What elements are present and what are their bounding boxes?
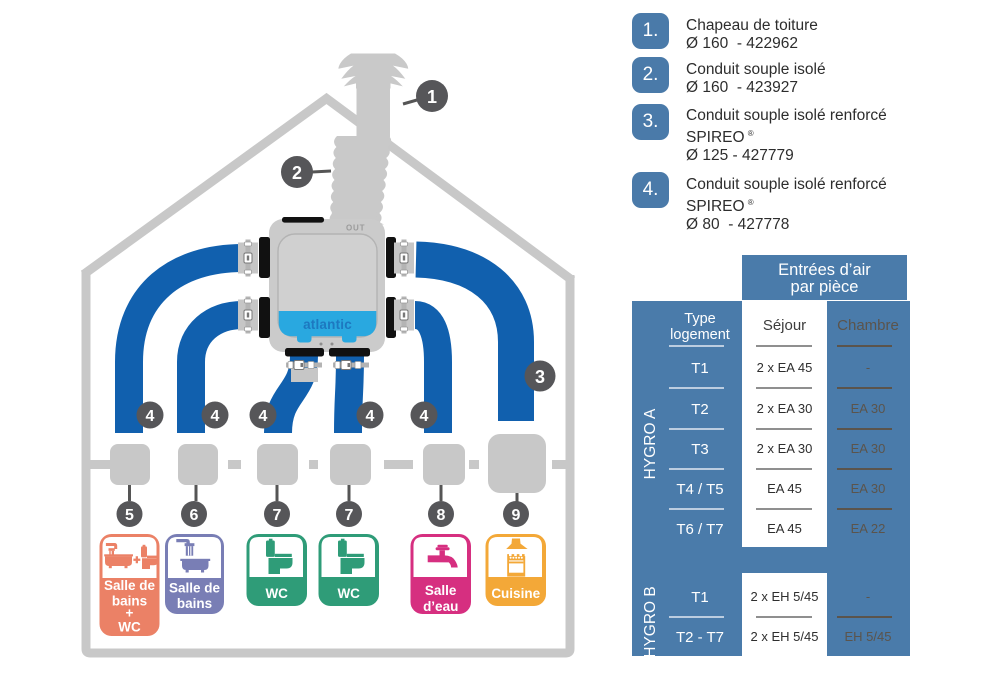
svg-text:WC: WC [118, 620, 141, 635]
svg-text:1: 1 [427, 87, 437, 107]
svg-text:5: 5 [125, 507, 134, 524]
svg-text:9: 9 [512, 507, 521, 524]
svg-text:atlantic: atlantic [303, 317, 352, 332]
svg-text:OUT: OUT [346, 224, 365, 233]
svg-text:8: 8 [437, 507, 446, 524]
svg-text:d’eau: d’eau [423, 599, 458, 614]
svg-text:4: 4 [420, 408, 429, 425]
svg-text:WC: WC [337, 586, 360, 601]
svg-text:bains: bains [177, 596, 212, 611]
svg-text:4: 4 [211, 408, 220, 425]
svg-text:7: 7 [345, 507, 354, 524]
svg-text:Salle: Salle [425, 583, 457, 598]
svg-text:4: 4 [366, 408, 375, 425]
svg-text:+: + [126, 606, 134, 621]
svg-text:7: 7 [273, 507, 282, 524]
svg-text:Salle de: Salle de [169, 581, 221, 596]
svg-text:WC: WC [265, 586, 288, 601]
svg-text:4: 4 [146, 408, 155, 425]
svg-text:Salle de: Salle de [104, 578, 156, 593]
svg-text:Cuisine: Cuisine [491, 586, 540, 601]
svg-text:4: 4 [259, 408, 268, 425]
svg-text:3: 3 [535, 367, 545, 387]
svg-text:6: 6 [190, 507, 199, 524]
svg-text:2: 2 [292, 163, 302, 183]
